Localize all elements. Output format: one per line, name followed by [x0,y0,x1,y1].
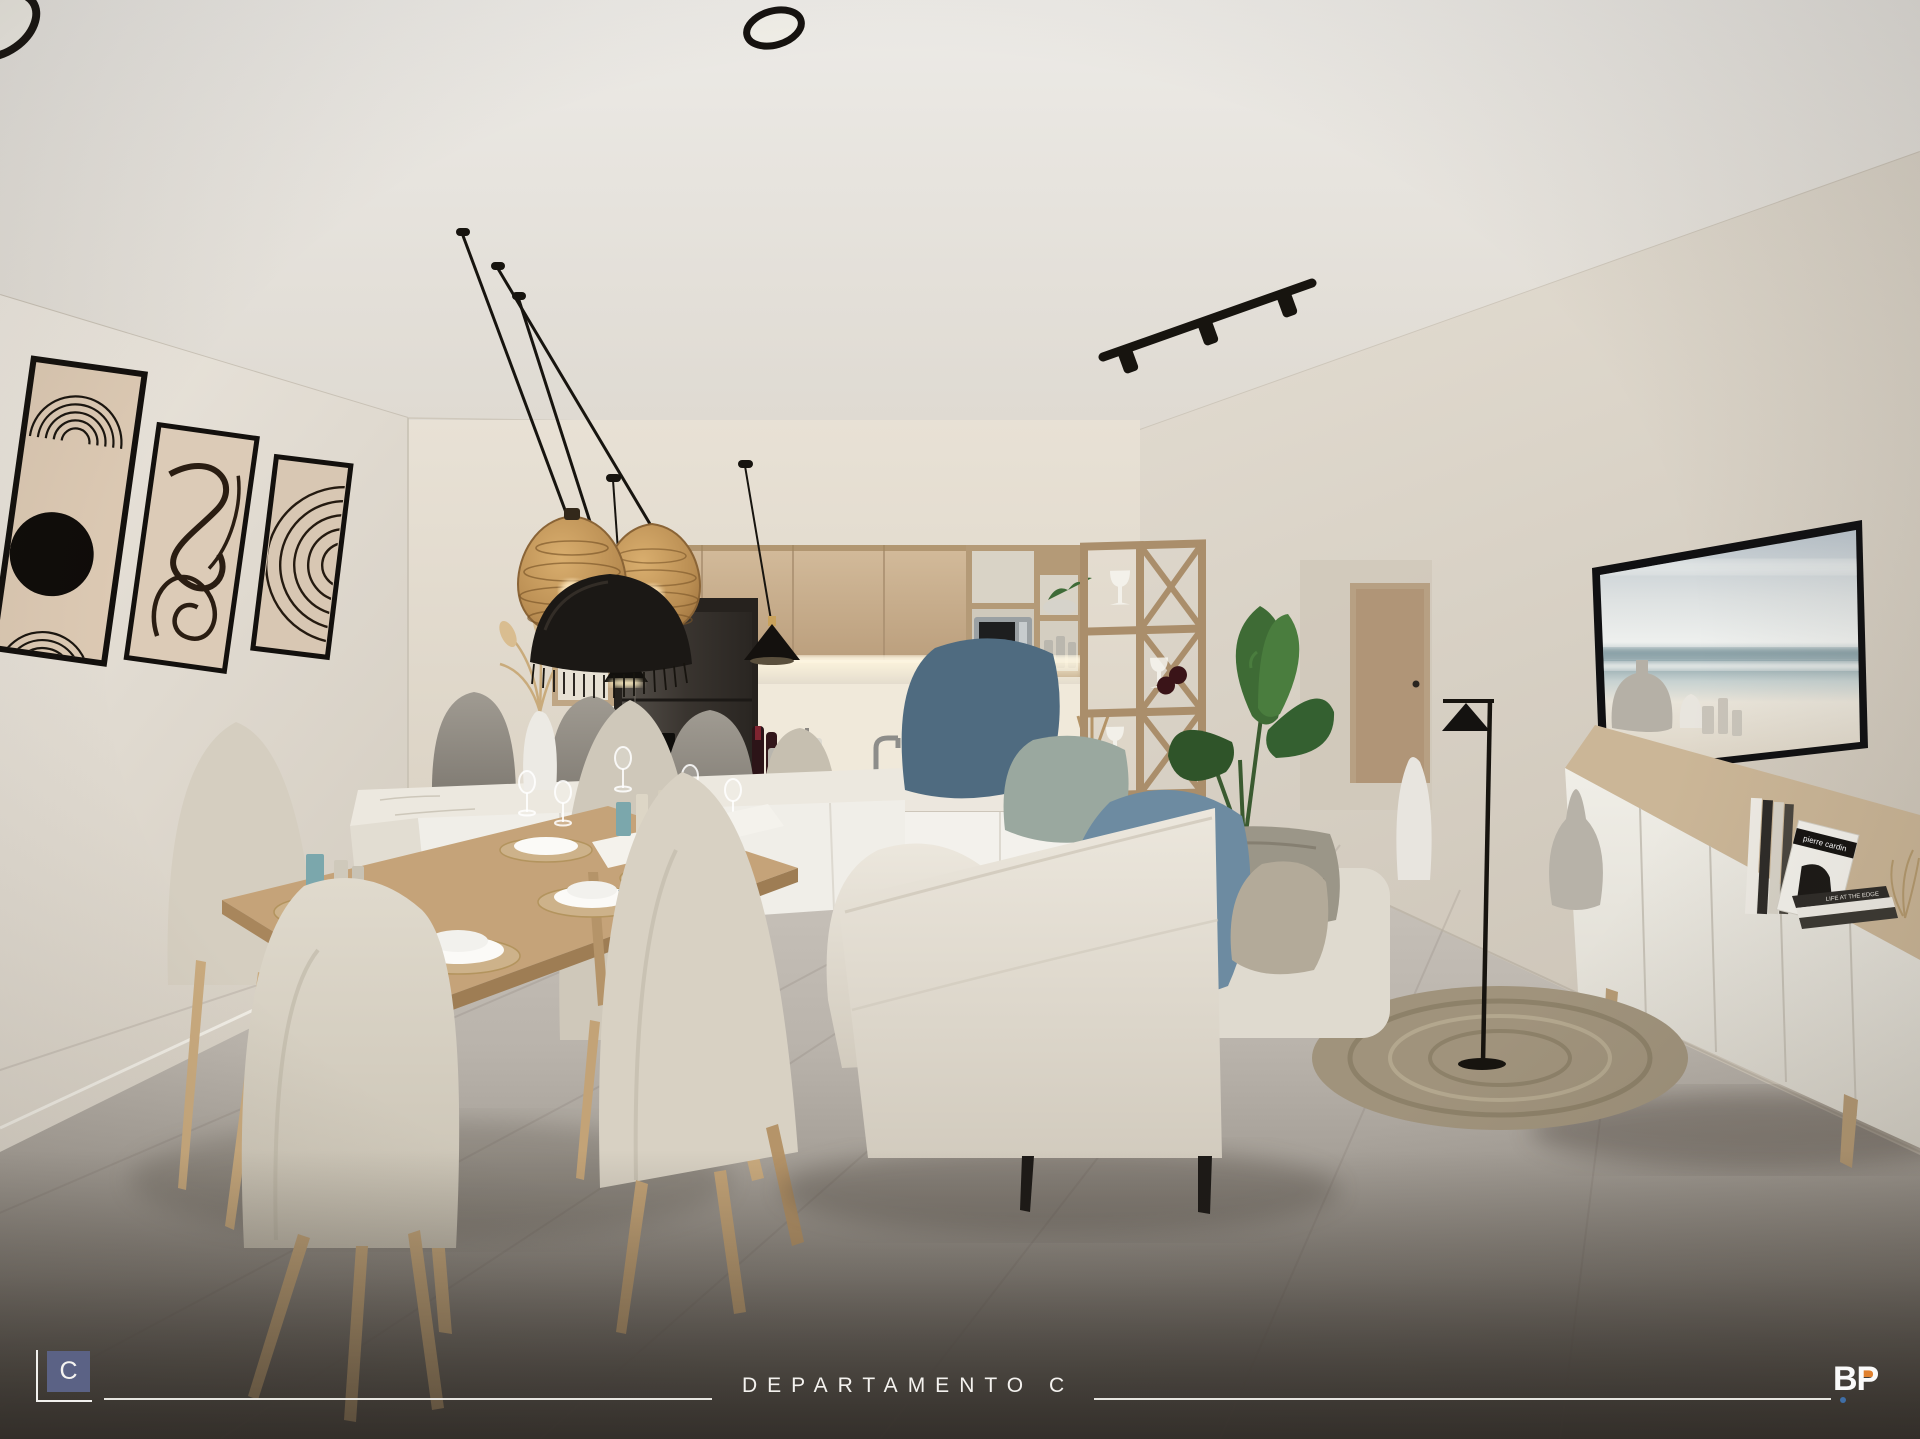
unit-logo: C [47,1351,90,1392]
brand-logo-text: BP [1833,1360,1878,1398]
footer-rule-right [1094,1398,1831,1400]
footer-rule-left [104,1398,712,1400]
brand-logo: BP [1833,1360,1903,1408]
scene-canvas: pierre cardin LIFE AT THE EDGE [0,0,1920,1439]
page-title: DEPARTAMENTO C [742,1374,1102,1398]
apartment-render: pierre cardin LIFE AT THE EDGE [0,0,1920,1439]
unit-logo-letter: C [59,1357,77,1386]
